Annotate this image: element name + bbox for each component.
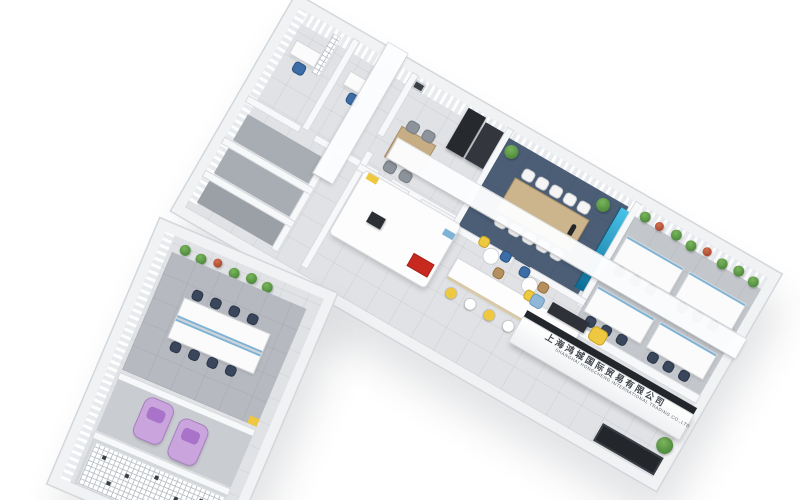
storage-box (173, 496, 178, 500)
left-wing (61, 232, 324, 500)
office-3d-floorplan: 上海鸿城国际贸易有限公司 SHANGHAI HONGCHENG INTERNAT… (0, 0, 800, 500)
